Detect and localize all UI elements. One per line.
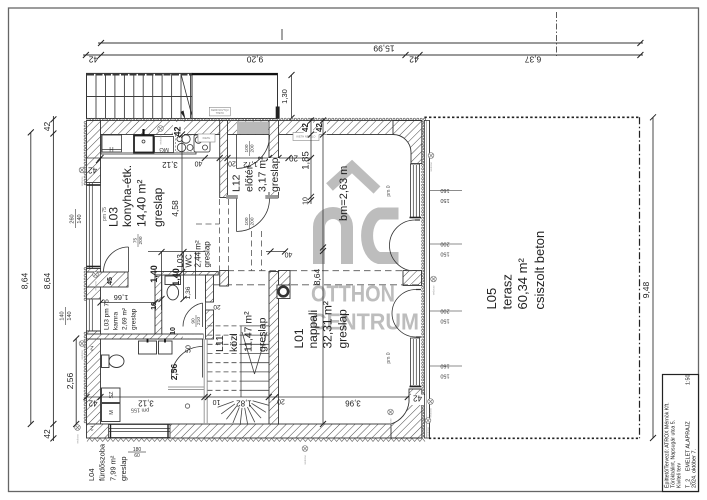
svg-text:L11: L11 xyxy=(214,335,226,352)
svg-text:greslap: greslap xyxy=(269,157,281,192)
svg-text:1,40: 1,40 xyxy=(171,268,181,286)
svg-text:8,64: 8,64 xyxy=(20,272,30,289)
svg-text:42: 42 xyxy=(42,429,52,439)
svg-text:9,48: 9,48 xyxy=(641,281,651,298)
svg-text:pm 75: pm 75 xyxy=(102,207,108,221)
svg-text:75: 75 xyxy=(133,238,139,244)
svg-text:konyha-étk.: konyha-étk. xyxy=(120,165,134,227)
svg-text:60: 60 xyxy=(134,453,140,459)
svg-text:200: 200 xyxy=(440,308,449,314)
svg-text:2024. október 7.: 2024. október 7. xyxy=(692,449,698,488)
svg-text:140: 140 xyxy=(67,311,73,320)
svg-text:8,64: 8,64 xyxy=(312,268,322,285)
svg-text:20: 20 xyxy=(228,160,236,167)
svg-text:vedocso: vedocso xyxy=(94,280,98,290)
svg-text:160: 160 xyxy=(440,363,449,369)
svg-text:3,96: 3,96 xyxy=(345,399,361,408)
svg-text:200: 200 xyxy=(138,236,144,244)
svg-text:vedocso: vedocso xyxy=(76,433,80,443)
svg-text:1:50: 1:50 xyxy=(686,375,692,386)
svg-text:210: 210 xyxy=(196,317,202,325)
svg-text:vedocso: vedocso xyxy=(80,349,84,359)
svg-text:4,58: 4,58 xyxy=(170,200,180,217)
svg-text:L04: L04 xyxy=(87,468,96,481)
svg-text:1,85: 1,85 xyxy=(301,151,312,170)
svg-text:1,30: 1,30 xyxy=(280,89,289,104)
svg-text:1,40: 1,40 xyxy=(149,265,159,283)
svg-text:42: 42 xyxy=(89,55,99,65)
svg-text:csiszolt beton: csiszolt beton xyxy=(532,231,547,310)
svg-text:42: 42 xyxy=(88,399,97,408)
svg-text:L12: L12 xyxy=(231,174,243,192)
svg-text:60,34 m²: 60,34 m² xyxy=(515,258,530,310)
svg-text:2,44 m²: 2,44 m² xyxy=(194,240,203,267)
svg-text:MG: MG xyxy=(159,146,169,152)
svg-text:40: 40 xyxy=(195,160,203,167)
svg-text:3,12: 3,12 xyxy=(138,399,154,408)
svg-text:42: 42 xyxy=(315,123,324,132)
svg-text:greslap: greslap xyxy=(131,308,138,330)
svg-text:42: 42 xyxy=(413,394,422,403)
svg-text:közl: közl xyxy=(228,333,240,352)
svg-text:150: 150 xyxy=(440,318,449,324)
svg-text:50: 50 xyxy=(186,345,193,353)
svg-text:2,56: 2,56 xyxy=(65,372,75,389)
svg-text:H: H xyxy=(109,145,113,151)
svg-text:150: 150 xyxy=(440,251,449,257)
svg-text:10: 10 xyxy=(170,327,177,335)
svg-text:greslap: greslap xyxy=(151,187,165,227)
svg-text:L03 pm 75: L03 pm 75 xyxy=(104,299,111,330)
svg-text:14,40 m²: 14,40 m² xyxy=(135,180,149,227)
svg-text:160: 160 xyxy=(440,187,449,193)
svg-text:8,64: 8,64 xyxy=(42,272,52,289)
svg-text:9,20: 9,20 xyxy=(246,55,263,65)
svg-text:1,82: 1,82 xyxy=(236,399,252,408)
svg-text:42: 42 xyxy=(409,55,419,65)
svg-text:L03: L03 xyxy=(107,207,121,227)
svg-text:KIETH: KIETH xyxy=(203,136,211,140)
svg-text:42: 42 xyxy=(42,122,52,132)
svg-text:11,47 m²: 11,47 m² xyxy=(243,311,255,352)
svg-text:terasz: terasz xyxy=(500,274,515,309)
svg-text:15,99: 15,99 xyxy=(373,44,395,54)
svg-text:L05: L05 xyxy=(484,288,499,310)
svg-text:10: 10 xyxy=(213,398,221,405)
svg-text:greslap: greslap xyxy=(203,241,212,268)
svg-text:7,99 m²: 7,99 m² xyxy=(109,455,118,481)
svg-text:100: 100 xyxy=(244,217,250,225)
svg-text:vedocso: vedocso xyxy=(80,176,84,186)
svg-text:200: 200 xyxy=(440,241,449,247)
svg-text:vedocso: vedocso xyxy=(429,161,433,171)
svg-text:3,17 m²: 3,17 m² xyxy=(257,156,269,192)
svg-text:6,37: 6,37 xyxy=(524,55,541,65)
svg-text:1,66: 1,66 xyxy=(114,293,129,302)
svg-text:fürdőszoba: fürdőszoba xyxy=(98,443,107,481)
svg-text:150: 150 xyxy=(440,197,449,203)
svg-text:Építtető/Tervező: ATROX Mérnök: Építtető/Tervező: ATROX Mérnök Kft. xyxy=(664,402,671,488)
svg-text:20: 20 xyxy=(289,154,298,163)
svg-text:L01: L01 xyxy=(292,328,306,348)
svg-text:45: 45 xyxy=(107,277,114,285)
svg-text:pm 0: pm 0 xyxy=(386,352,392,363)
svg-text:200: 200 xyxy=(250,217,256,225)
svg-text:140: 140 xyxy=(60,311,66,320)
svg-text:260: 260 xyxy=(70,214,76,223)
svg-text:vedocso: vedocso xyxy=(432,285,436,295)
svg-text:vedocso: vedocso xyxy=(426,426,430,436)
svg-text:20: 20 xyxy=(277,398,285,405)
svg-text:vedocso: vedocso xyxy=(389,418,393,428)
svg-text:90: 90 xyxy=(191,318,197,324)
svg-text:1,36: 1,36 xyxy=(185,286,192,299)
svg-text:2,56: 2,56 xyxy=(169,363,179,380)
svg-text:greslap: greslap xyxy=(119,456,128,481)
svg-text:200: 200 xyxy=(250,144,256,152)
svg-text:THETO: THETO xyxy=(216,112,224,115)
svg-text:20: 20 xyxy=(213,303,221,310)
svg-text:42: 42 xyxy=(88,166,97,175)
svg-text:3,12: 3,12 xyxy=(162,160,178,169)
svg-text:KIETH NEVELO: KIETH NEVELO xyxy=(297,135,316,139)
svg-text:150: 150 xyxy=(440,373,449,379)
svg-text:bm=2,63 m: bm=2,63 m xyxy=(338,166,350,221)
svg-text:vedocso: vedocso xyxy=(303,454,307,464)
svg-text:40: 40 xyxy=(285,251,293,258)
svg-text:M: M xyxy=(109,410,115,415)
svg-text:WC: WC xyxy=(185,254,194,268)
svg-text:greslap: greslap xyxy=(336,309,350,349)
svg-text:kamra: kamra xyxy=(113,312,120,330)
svg-text:100: 100 xyxy=(244,144,250,152)
svg-text:140: 140 xyxy=(77,214,83,223)
svg-text:2,69 m²: 2,69 m² xyxy=(122,307,129,330)
svg-text:pm 0: pm 0 xyxy=(386,185,392,196)
svg-text:nappali: nappali xyxy=(306,310,320,349)
svg-text:előtér: előtér xyxy=(244,165,256,192)
svg-text:42: 42 xyxy=(301,123,310,132)
svg-text:vedocso: vedocso xyxy=(429,407,433,417)
svg-text:32,31 m²: 32,31 m² xyxy=(321,301,335,348)
svg-text:greslap: greslap xyxy=(257,317,269,352)
svg-text:vedocso: vedocso xyxy=(159,134,163,144)
svg-text:Kiviteli terv: Kiviteli terv xyxy=(677,463,683,488)
svg-text:10: 10 xyxy=(303,197,310,205)
